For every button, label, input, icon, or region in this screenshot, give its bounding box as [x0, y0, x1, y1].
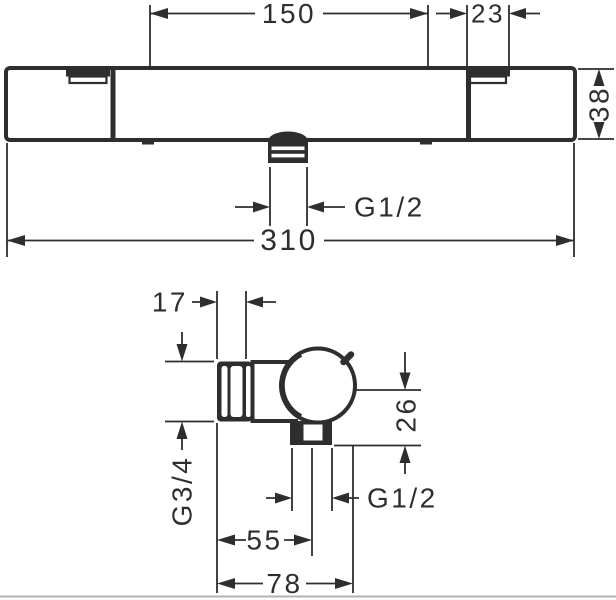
outlet-connector-front	[268, 132, 308, 164]
outlet-hex-face	[304, 425, 323, 441]
dim-55-arrow-left	[217, 535, 235, 546]
dim-17-arrow-left	[200, 297, 217, 308]
union-nut	[217, 362, 252, 422]
dim-150-arrow-left	[150, 8, 168, 19]
dim-23-arrow-left	[450, 8, 467, 19]
dim-310-arrow-left	[7, 235, 25, 246]
dim-150-label: 150	[262, 0, 316, 29]
notch-top-band	[66, 67, 110, 77]
nut-facet	[246, 366, 251, 417]
dim-55-arrow-right	[294, 535, 312, 546]
outlet-thread-block	[268, 140, 308, 163]
dim-g12-front: G1/2	[235, 167, 425, 226]
dim-g34-label: G3/4	[167, 456, 198, 527]
dim-38-arrow-top	[594, 69, 605, 86]
dim-g12-arrow-right	[307, 202, 324, 213]
dim-17: 17	[152, 287, 276, 360]
dim-150: 150	[150, 0, 428, 66]
dim-78-arrow-right	[335, 578, 353, 589]
mounting-notch-right	[467, 67, 510, 84]
dim-78-label: 78	[266, 568, 302, 599]
dim-310-label: 310	[260, 224, 318, 257]
inlet-stub-left	[142, 139, 154, 145]
dim-26-label: 26	[391, 396, 422, 432]
inlet-stub-right	[420, 139, 432, 145]
dim-17-label: 17	[152, 287, 188, 318]
side-view: 17 G3/4	[152, 287, 438, 600]
dim-38-arrow-bottom	[594, 122, 605, 139]
dim-g34-extension-lines	[165, 362, 214, 422]
outlet-connector-side	[290, 421, 332, 445]
dim-26-arrow-bottom	[400, 446, 411, 464]
dim-23: 23	[436, 0, 540, 67]
dim-17-extension-lines	[217, 291, 246, 359]
thread-groove	[272, 147, 305, 151]
front-view: 150 23	[6, 0, 615, 257]
dim-g12-side-label: G1/2	[367, 483, 438, 514]
dim-38-label: 38	[584, 86, 615, 122]
dim-78-arrow-left	[217, 578, 235, 589]
dim-g34-arrow-top	[177, 344, 188, 362]
dim-g12-front-label: G1/2	[354, 192, 425, 223]
nut-facet	[231, 366, 243, 417]
dim-26-arrow-top	[400, 373, 411, 391]
temperature-stop-pin	[344, 355, 352, 363]
notch-top-band	[467, 67, 510, 77]
dim-23-label: 23	[471, 0, 505, 29]
dim-55-label: 55	[246, 525, 282, 556]
mounting-notch-left	[66, 67, 110, 84]
dim-17-arrow-right	[246, 297, 263, 308]
dim-g12-arrow-left	[253, 202, 270, 213]
nut-facet	[222, 366, 228, 417]
dim-150-arrow-right	[410, 8, 428, 19]
dim-g34-arrow-bottom	[177, 422, 188, 440]
dim-g12-side-arrow-right	[332, 493, 349, 504]
dim-g12-side-arrow-left	[275, 493, 292, 504]
dim-g12-side: G1/2	[266, 448, 438, 514]
thread-groove	[272, 154, 305, 158]
dim-38: 38	[578, 69, 615, 139]
notch-slot	[70, 77, 107, 84]
dim-g34: G3/4	[165, 332, 214, 526]
notch-slot	[470, 77, 506, 84]
dim-23-arrow-right	[509, 8, 526, 19]
drawing-canvas: 150 23	[0, 0, 616, 600]
dim-310-arrow-right	[556, 235, 574, 246]
dim-g12-extension-lines	[270, 167, 307, 226]
technical-drawing-page: 150 23	[0, 0, 616, 600]
